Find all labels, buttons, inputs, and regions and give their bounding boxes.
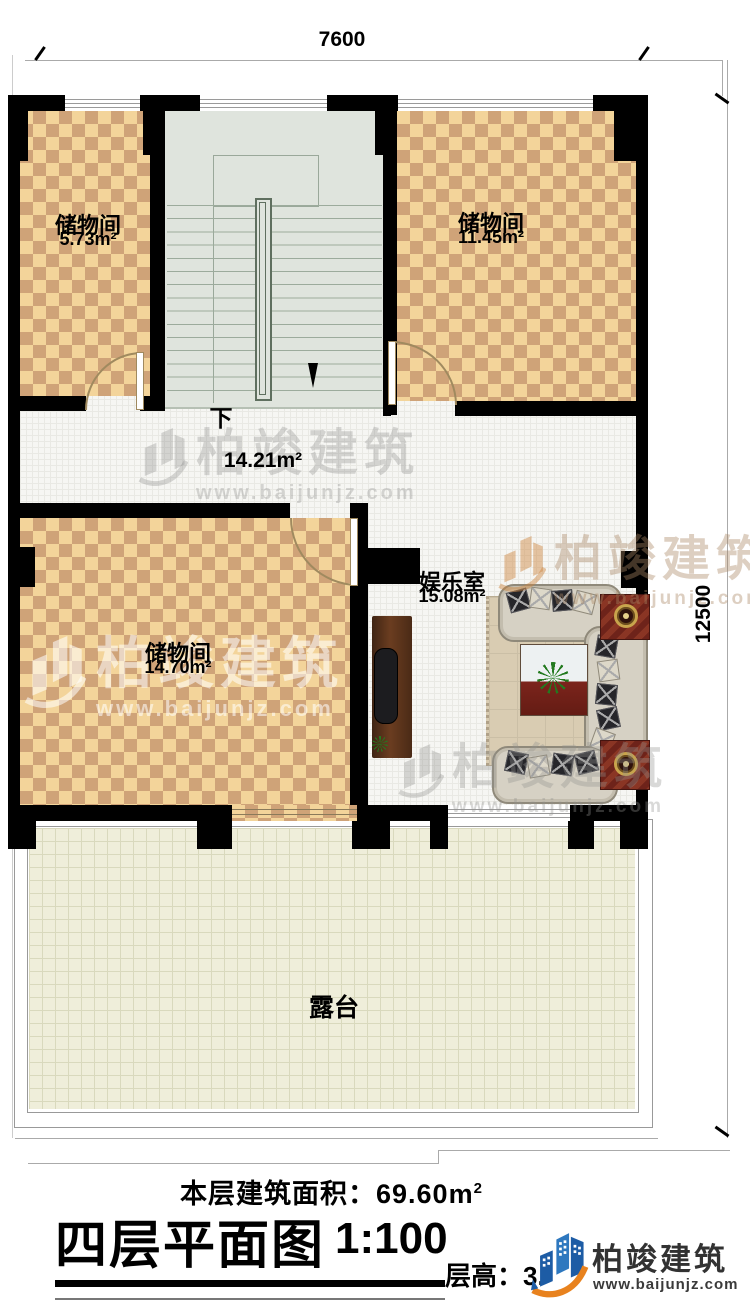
door-leaf-room1: [136, 352, 144, 410]
pier-bottom-5: [568, 821, 594, 849]
pillow: [504, 750, 529, 775]
pillow: [597, 659, 621, 683]
dimension-line-right: [727, 60, 728, 1138]
wall-bottom-c: [570, 805, 648, 821]
drawing-scale: 1:100: [335, 1214, 448, 1264]
pillow: [551, 753, 575, 777]
entertainment-room-area: 15.08m²: [418, 586, 485, 607]
pillow: [551, 589, 574, 612]
stair-down-label: 下: [210, 399, 233, 433]
dimension-extension-top-right: [722, 60, 723, 96]
sliding-door-line-1: [232, 809, 357, 810]
brand-url: www.baijunjz.com: [593, 1276, 738, 1293]
pier-left-wall: [20, 547, 35, 587]
window-top-1: [65, 96, 140, 110]
window-bottom: [448, 806, 570, 820]
sheet-frame-bottom3-stub: [438, 1150, 439, 1164]
window-top-2: [200, 96, 327, 110]
pillow: [596, 706, 621, 731]
sheet-frame-bottom3: [438, 1150, 730, 1151]
stair-treads-right: [272, 205, 382, 403]
terrace-parapet-inner: [27, 826, 639, 1113]
wall-stair-left: [150, 95, 165, 411]
pillow: [529, 587, 553, 611]
sliding-opening-floor: [232, 805, 357, 821]
wall-room3-top-a: [8, 503, 290, 518]
dimension-top-label: 7600: [319, 28, 366, 52]
wall-bottom-b: [357, 805, 448, 821]
pillow: [526, 754, 550, 778]
wall-left: [8, 95, 20, 821]
floor-area-exponent: 2: [474, 1180, 483, 1197]
wall-room2-bottom-b: [455, 401, 648, 416]
title-underline: [55, 1280, 445, 1287]
pier-mid: [368, 548, 420, 584]
title-underline-thin: [55, 1298, 445, 1300]
floor-area-value: 69.60m: [376, 1179, 474, 1209]
pier-bottom-1: [8, 821, 36, 849]
floor-plan-sheet: 7600 12500: [0, 0, 750, 1307]
dim-tick-top-right: [638, 46, 650, 61]
side-table-bottom-lamp: [614, 752, 638, 776]
room3-area: 14.70m²: [144, 657, 211, 678]
door-leaf-room2: [388, 341, 396, 405]
stair-railing-inner: [259, 202, 266, 395]
dimension-line-top: [25, 60, 723, 61]
sheet-frame-bottom2: [28, 1163, 438, 1164]
brand-logo-icon: [531, 1227, 589, 1299]
door-leaf-room3: [350, 518, 358, 586]
window-top-3: [398, 96, 593, 110]
room2-area: 11.45m²: [458, 227, 524, 248]
pier-bottom-6: [620, 821, 648, 849]
dim-tick-top-left: [34, 46, 46, 61]
brand-name: 柏竣建筑: [592, 1234, 728, 1279]
office-chair: [374, 648, 398, 724]
hall-area-label: 14.21m²: [224, 449, 302, 473]
desk-plant: [372, 736, 388, 752]
wall-bottom-a: [8, 805, 232, 821]
stair-direction-arrow: [308, 363, 318, 388]
stair-treads-left: [167, 205, 257, 403]
sliding-door-line-2: [232, 814, 357, 815]
terrace-label: 露台: [309, 988, 359, 1024]
floor-height-label: 层高：3.: [445, 1256, 545, 1293]
pillow: [595, 683, 618, 706]
coffee-table-plant: [537, 662, 569, 694]
room1-area: 5.73m²: [59, 229, 116, 250]
drawing-title: 四层平面图: [55, 1203, 325, 1278]
wall-room1-bottom-a: [8, 396, 86, 411]
pier-bottom-3: [352, 821, 390, 849]
pier-right-wall: [621, 551, 636, 588]
pier-bottom-2: [197, 821, 232, 849]
pier-top-right: [614, 95, 636, 161]
pier-bottom-4: [430, 821, 448, 849]
sheet-frame-bottom: [15, 1138, 658, 1139]
side-table-top-lamp: [614, 604, 638, 628]
dimension-right-label: 12500: [692, 584, 716, 644]
